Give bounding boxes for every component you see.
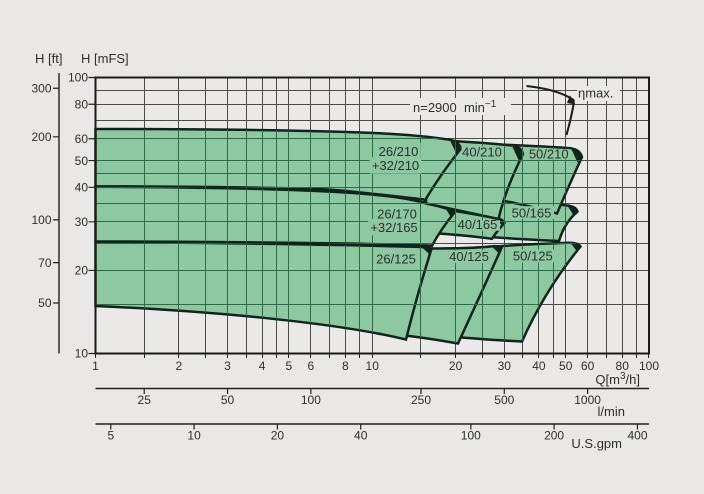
svg-text:5: 5 bbox=[107, 429, 114, 443]
svg-text:60: 60 bbox=[75, 132, 89, 146]
svg-text:8: 8 bbox=[342, 359, 349, 373]
svg-text:80: 80 bbox=[75, 97, 89, 111]
svg-text:Q[m3/h]: Q[m3/h] bbox=[595, 371, 640, 387]
svg-text:200: 200 bbox=[31, 130, 51, 144]
svg-text:50/125: 50/125 bbox=[513, 249, 553, 264]
svg-text:5: 5 bbox=[286, 359, 293, 373]
svg-text:20: 20 bbox=[75, 264, 89, 278]
svg-text:40/165: 40/165 bbox=[458, 217, 498, 232]
svg-text:2: 2 bbox=[175, 359, 182, 373]
svg-text:50: 50 bbox=[38, 296, 52, 310]
svg-text:40: 40 bbox=[75, 181, 89, 195]
svg-text:50: 50 bbox=[75, 154, 89, 168]
svg-text:10: 10 bbox=[366, 359, 380, 373]
svg-text:30: 30 bbox=[75, 215, 89, 229]
svg-text:500: 500 bbox=[494, 393, 514, 407]
svg-text:20: 20 bbox=[271, 429, 285, 443]
svg-text:60: 60 bbox=[581, 359, 595, 373]
svg-text:100: 100 bbox=[301, 393, 321, 407]
svg-text:l/min: l/min bbox=[598, 404, 625, 419]
svg-text:50/165: 50/165 bbox=[512, 206, 552, 221]
svg-text:400: 400 bbox=[627, 429, 647, 443]
svg-text:300: 300 bbox=[31, 81, 51, 95]
svg-text:U.S.gpm: U.S.gpm bbox=[571, 436, 622, 451]
svg-text:25: 25 bbox=[138, 393, 152, 407]
svg-text:100: 100 bbox=[68, 71, 88, 85]
svg-text:6: 6 bbox=[308, 359, 315, 373]
svg-text:10: 10 bbox=[187, 429, 201, 443]
svg-text:ηmax.: ηmax. bbox=[578, 86, 613, 101]
svg-text:100: 100 bbox=[461, 429, 481, 443]
svg-text:40: 40 bbox=[532, 359, 546, 373]
svg-text:20: 20 bbox=[449, 359, 463, 373]
svg-text:200: 200 bbox=[544, 429, 564, 443]
svg-text:250: 250 bbox=[411, 393, 431, 407]
svg-text:10: 10 bbox=[75, 347, 89, 361]
svg-text:100: 100 bbox=[639, 359, 659, 373]
svg-text:70: 70 bbox=[38, 256, 52, 270]
svg-text:30: 30 bbox=[498, 359, 512, 373]
svg-text:+32/210: +32/210 bbox=[372, 158, 419, 173]
svg-text:H [ft]: H [ft] bbox=[35, 51, 62, 66]
svg-text:40/125: 40/125 bbox=[449, 249, 489, 264]
svg-text:n=2900 min−1: n=2900 min−1 bbox=[413, 99, 497, 115]
svg-text:100: 100 bbox=[31, 213, 51, 227]
svg-text:50: 50 bbox=[221, 393, 235, 407]
svg-text:50/210: 50/210 bbox=[529, 147, 569, 162]
svg-text:40/210: 40/210 bbox=[462, 145, 502, 160]
svg-text:+32/165: +32/165 bbox=[370, 220, 417, 235]
svg-text:50: 50 bbox=[559, 359, 573, 373]
svg-text:1: 1 bbox=[92, 359, 99, 373]
svg-text:26/125: 26/125 bbox=[376, 252, 416, 267]
svg-text:4: 4 bbox=[259, 359, 266, 373]
svg-text:40: 40 bbox=[354, 429, 368, 443]
svg-text:3: 3 bbox=[224, 359, 231, 373]
svg-text:26/210: 26/210 bbox=[379, 144, 419, 159]
svg-text:H [mFS]: H [mFS] bbox=[81, 51, 129, 66]
